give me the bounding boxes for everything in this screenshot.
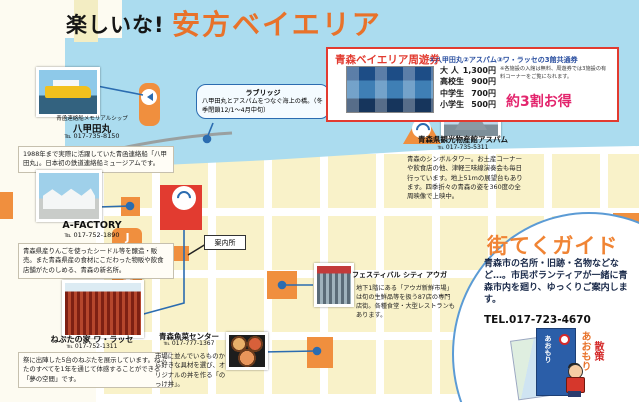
ticket-note: ※各施設の入館は無料、周遊券では3施設の有料コーナーをご覧になれます。 <box>500 66 610 82</box>
aspam-description: 青森のシンボルタワー。お土産コーナーや飲食店の他、津軽三味線演奏会も毎日行ってい… <box>403 152 527 204</box>
walking-mascot-character <box>560 364 590 398</box>
title-prefix: 楽しいな! <box>66 9 165 39</box>
excursion-ticket-box: 青森ベイエリア周遊券 ①八甲田丸②アスパム③ワ・ラッセの3館共通券 大 人1,3… <box>326 47 619 122</box>
price-row: 大 人1,300円 <box>440 65 496 76</box>
hakkodamaru-tel: ℡ 017-735-8150 <box>17 132 167 140</box>
price-label: 高校生 <box>440 76 464 87</box>
afactory-map-marker <box>121 197 140 216</box>
guide-title: 街てくガイド <box>487 230 618 260</box>
price-label: 大 人 <box>440 65 459 76</box>
warasse-description: 祭に出陣した5台のねぶたを展示しています。ねぶたのすべてを1年を通じて体感するこ… <box>18 352 172 388</box>
lovebridge-title: ラブリッジ <box>202 88 324 98</box>
guide-tel: TEL.017-723-4670 <box>484 314 591 326</box>
price-value: 1,300円 <box>463 65 496 76</box>
price-value: 500円 <box>471 99 496 110</box>
aspam-tel: ℡ 017-735-5311 <box>404 144 522 151</box>
price-row: 小学生500円 <box>440 99 496 110</box>
ticket-montage-photo <box>346 66 434 113</box>
afactory-tel: ℡ 017-752-1890 <box>17 231 167 239</box>
bay-area-map-flyer: 楽しいな! 安方ベイエリア JR青森駅 案内所 ラブリッジ 八甲田丸とアスパムを… <box>0 0 639 402</box>
ship-arrow-icon <box>147 93 153 101</box>
gyosai-description: 市場に並んでいるものから好きな具材を選び、オリジナルの丼を作る「のっけ丼」。 <box>151 349 231 392</box>
hinomaru-dot-icon <box>559 334 570 345</box>
pamphlet-cover-title: あおもり <box>543 335 553 363</box>
price-row: 高校生900円 <box>440 76 496 87</box>
info-office-label: 案内所 <box>204 235 246 250</box>
ticket-price-table: 大 人1,300円 高校生900円 中学生700円 小学生500円 <box>440 65 496 110</box>
page-title: 安方ベイエリア <box>172 3 382 43</box>
price-label: 中学生 <box>440 88 464 99</box>
ticket-subtitle: ①八甲田丸②アスパム③ワ・ラッセの3館共通券 <box>429 55 578 65</box>
ticket-deal-text: 約3割お得 <box>506 91 572 111</box>
mascot-legs <box>568 391 581 397</box>
afactory-description: 青森県産りんごを使ったシードル等を醸造・販売。また青森県産の食材にこだわった物販… <box>18 243 174 279</box>
pamphlet-sansaku-text: 散策 <box>590 341 605 361</box>
price-value: 700円 <box>471 88 496 99</box>
ship-deck-shape <box>53 80 79 86</box>
price-value: 900円 <box>471 76 496 87</box>
price-row: 中学生700円 <box>440 88 496 99</box>
auga-map-marker <box>267 271 297 299</box>
gyosai-tel: ℡ 017-777-1367 <box>150 340 228 347</box>
warasse-tel: ℡ 017-752-1311 <box>17 343 167 350</box>
gyosai-map-marker <box>307 337 333 368</box>
afactory-photo <box>36 170 102 222</box>
warasse-photo <box>62 280 144 338</box>
edge-building-left <box>0 192 13 219</box>
ship-hull-shape <box>45 86 91 98</box>
auga-photo <box>314 263 354 307</box>
ticket-name: 青森ベイエリア周遊券 <box>335 52 440 67</box>
guide-description: 青森市の名所・旧跡・名物などなど…。市民ボランティアが一緒に青森市内を廻り、ゆっ… <box>484 258 634 307</box>
lovebridge-text: 八甲田丸とアスパムをつなぐ海上の橋。（冬季閉鎖12/1～4月中旬） <box>202 98 324 115</box>
hakkodamaru-photo <box>36 67 100 117</box>
price-label: 小学生 <box>440 99 464 110</box>
factory-roof-shape <box>43 187 95 209</box>
hakkodamaru-description: 1988年まで実際に活躍していた青函連絡船「八甲田丸」。日本初の鉄道連絡船ミュー… <box>18 146 174 173</box>
auga-description: 地下1階にある「アウガ新鮮市場」は旬の生鮮品等を扱う87店の専門店街。各種食堂・… <box>352 282 460 324</box>
auga-name: フェスティバル シティ アウガ <box>352 270 456 280</box>
afactory-name: A-FACTORY <box>17 220 167 231</box>
nokkedon-bowls-photo <box>226 332 268 370</box>
lovebridge-callout: ラブリッジ 八甲田丸とアスパムをつなぐ海上の橋。（冬季閉鎖12/1～4月中旬） <box>196 84 330 119</box>
